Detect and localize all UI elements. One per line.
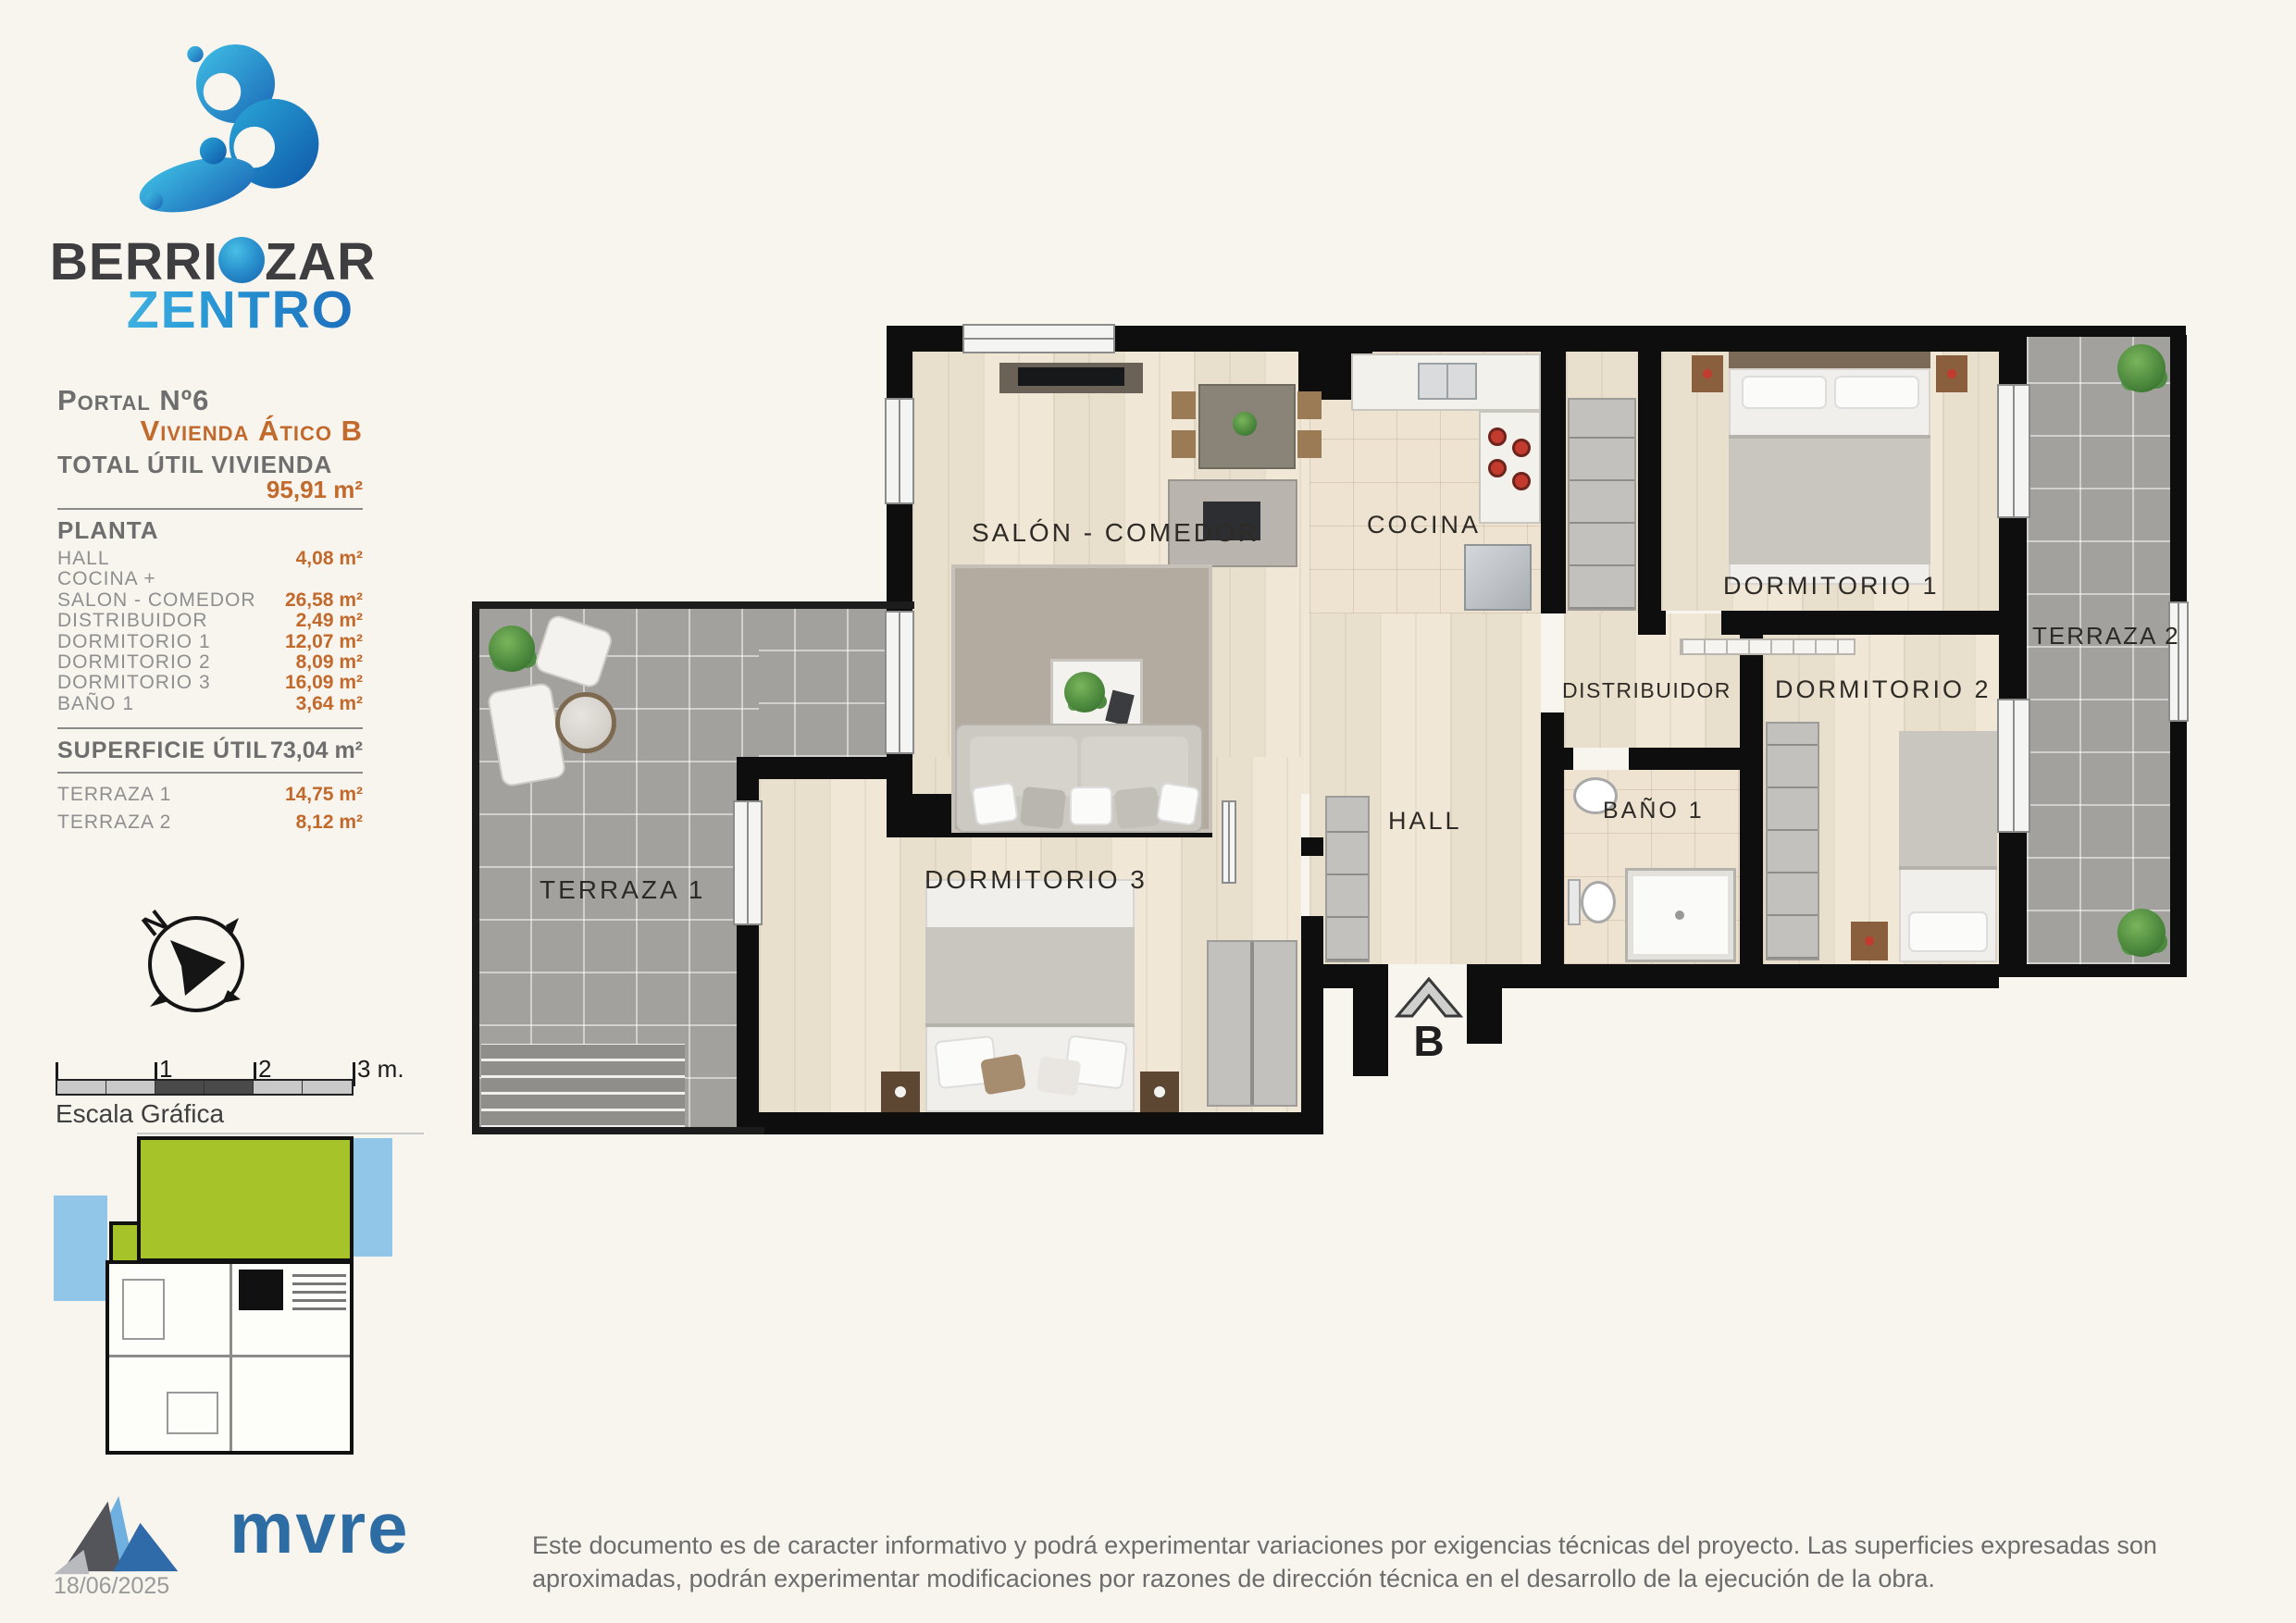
superficie-row: SUPERFICIE ÚTIL 73,04 m² bbox=[57, 737, 363, 764]
table-row: SALON - COMEDOR26,58 m² bbox=[57, 589, 363, 610]
wall bbox=[1467, 964, 1999, 988]
window bbox=[962, 324, 1115, 353]
brand-line-2: ZENTRO bbox=[37, 279, 389, 341]
window bbox=[733, 800, 763, 925]
room-label-dormitorio1: DORMITORIO 1 bbox=[1723, 572, 1940, 601]
wall bbox=[1301, 916, 1323, 1112]
wall bbox=[1629, 748, 1740, 770]
sofa-pillow bbox=[1020, 787, 1066, 830]
table-plant-icon bbox=[1233, 412, 1257, 436]
terrace-plant-icon bbox=[2117, 344, 2166, 392]
terraza2-row: TERRAZA 2 8,12 m² bbox=[57, 811, 363, 834]
window bbox=[1997, 384, 2030, 518]
nightstand bbox=[1851, 922, 1888, 960]
bed-headboard bbox=[1729, 352, 1930, 368]
wall bbox=[2170, 722, 2187, 964]
table-row: COCINA + bbox=[57, 568, 363, 588]
key-plan-core bbox=[239, 1270, 283, 1310]
bed-blanket bbox=[1729, 435, 1930, 564]
bed-cushion bbox=[980, 1053, 1026, 1095]
compass-icon: N bbox=[130, 898, 259, 1027]
table-row: DORMITORIO 112,07 m² bbox=[57, 631, 363, 651]
room-label-bano1: BAÑO 1 bbox=[1603, 798, 1705, 824]
bed-blanket bbox=[925, 927, 1135, 1027]
fridge bbox=[1464, 544, 1532, 611]
wardrobe bbox=[1207, 940, 1297, 1107]
terrace-plant-icon bbox=[489, 626, 535, 672]
key-plan-stairs bbox=[292, 1270, 346, 1310]
key-plan-terrace-right bbox=[354, 1138, 392, 1257]
table-row: DISTRIBUIDOR2,49 m² bbox=[57, 610, 363, 630]
wall bbox=[1541, 712, 1564, 964]
hall-wardrobe bbox=[1325, 796, 1370, 962]
entrance-stub-wall bbox=[1353, 988, 1388, 1076]
portal-label: Portal Nº6 bbox=[57, 384, 209, 417]
terrace-railing bbox=[2168, 601, 2189, 722]
terraza1-border bbox=[472, 601, 479, 1134]
wardrobe bbox=[1568, 398, 1636, 611]
radiator bbox=[1680, 638, 1855, 655]
terrace-plant-icon bbox=[2117, 909, 2166, 957]
planta-label: PLANTA bbox=[57, 516, 159, 545]
terraza1-border bbox=[472, 1127, 764, 1134]
floorplan-document: BERRIOZAR ZENTRO Portal Nº6 Vivienda Áti… bbox=[0, 0, 2296, 1623]
key-plan bbox=[28, 1131, 426, 1492]
wall bbox=[737, 925, 759, 1112]
terrace-door-window bbox=[885, 611, 914, 754]
mvre-wordmark: mvre bbox=[230, 1492, 409, 1564]
sofa-pillow bbox=[1070, 787, 1112, 825]
scale-caption: Escala Gráfica bbox=[56, 1099, 224, 1129]
wall bbox=[737, 757, 912, 779]
bed-pillow bbox=[1834, 376, 1919, 409]
nightstand bbox=[881, 1072, 920, 1112]
nightstand bbox=[1140, 1072, 1179, 1112]
room-label-cocina: COCINA bbox=[1367, 511, 1481, 539]
table-row: DORMITORIO 316,09 m² bbox=[57, 672, 363, 692]
key-plan-highlight-unit-upper bbox=[137, 1136, 354, 1262]
berriozar-splash-logo-icon bbox=[88, 17, 356, 231]
room-label-dormitorio3: DORMITORIO 3 bbox=[925, 865, 1148, 895]
cooktop-burner bbox=[1512, 472, 1531, 490]
sofa-pillow bbox=[1156, 782, 1200, 826]
entrance-arrow-icon bbox=[1394, 972, 1464, 1020]
wardrobe bbox=[1766, 722, 1819, 960]
scale-bar-segments bbox=[56, 1079, 354, 1096]
brand-o-ball-icon: O bbox=[218, 237, 265, 283]
wall bbox=[1638, 326, 1661, 611]
window bbox=[885, 398, 914, 504]
wall bbox=[1999, 964, 2187, 977]
superficie-value: 73,04 m² bbox=[270, 737, 363, 764]
room-areas-table: HALL4,08 m² COCINA + SALON - COMEDOR26,5… bbox=[57, 548, 363, 713]
tv bbox=[1018, 367, 1124, 386]
wall bbox=[737, 1112, 1323, 1134]
round-table bbox=[555, 692, 616, 753]
dining-chair bbox=[1172, 430, 1196, 458]
scale-bar: 1 2 3 m. Escala Gráfica bbox=[56, 1055, 444, 1138]
key-plan-terrace-left bbox=[54, 1196, 107, 1301]
kitchen-sink bbox=[1418, 363, 1477, 400]
window bbox=[1997, 699, 2030, 833]
disclaimer-text: Este documento es de caracter informativ… bbox=[532, 1529, 2272, 1596]
cooktop-burner bbox=[1488, 427, 1507, 446]
scale-tick-3: 3 m. bbox=[357, 1055, 404, 1084]
compass-north-label: N bbox=[136, 903, 173, 943]
bed-cushion bbox=[1036, 1056, 1082, 1096]
table-row: DORMITORIO 28,09 m² bbox=[57, 651, 363, 672]
superficie-label: SUPERFICIE ÚTIL bbox=[57, 737, 268, 764]
cooktop-burner bbox=[1512, 439, 1531, 457]
bed-blanket bbox=[1899, 731, 1997, 870]
toilet-tank bbox=[1568, 879, 1581, 925]
sofa-pillow bbox=[971, 782, 1018, 826]
dining-chair bbox=[1172, 391, 1196, 419]
wall bbox=[1740, 613, 1763, 964]
room-label-hall: HALL bbox=[1388, 807, 1462, 836]
wall bbox=[1721, 611, 1999, 635]
document-date: 18/06/2025 bbox=[54, 1573, 169, 1600]
coffee-table-plant-icon bbox=[1064, 672, 1105, 712]
room-label-salon: SALÓN - COMEDOR bbox=[972, 518, 1260, 548]
table-row: HALL4,08 m² bbox=[57, 548, 363, 568]
door-leaf bbox=[1222, 800, 1236, 884]
mvre-mountains-icon bbox=[54, 1488, 230, 1577]
terraza1-row: TERRAZA 1 14,75 m² bbox=[57, 784, 363, 806]
cooktop-burner bbox=[1488, 459, 1507, 477]
wall bbox=[2027, 326, 2186, 337]
dining-chair bbox=[1297, 391, 1322, 419]
vivienda-label: Vivienda Ático B bbox=[57, 415, 363, 448]
divider bbox=[57, 772, 363, 774]
divider bbox=[57, 508, 363, 510]
room-label-terraza2: TERRAZA 2 bbox=[2032, 622, 2180, 650]
bed-pillow bbox=[1908, 911, 1988, 952]
dining-chair bbox=[1297, 430, 1322, 458]
entrance-stub-wall bbox=[1467, 988, 1502, 1044]
room-label-dormitorio2: DORMITORIO 2 bbox=[1775, 675, 1992, 704]
toilet bbox=[1581, 881, 1616, 923]
divider bbox=[57, 727, 363, 729]
room-label-distribuidor: DISTRIBUIDOR bbox=[1562, 678, 1731, 703]
entrance-letter: B bbox=[1394, 1016, 1464, 1066]
wall bbox=[1541, 326, 1566, 613]
nightstand bbox=[1692, 355, 1723, 392]
bed-pillow bbox=[1742, 376, 1827, 409]
wall bbox=[1638, 611, 1666, 635]
nightstand bbox=[1936, 355, 1967, 392]
wall bbox=[2170, 335, 2187, 601]
wall bbox=[1301, 837, 1323, 856]
terraza1-border bbox=[472, 601, 914, 609]
shower-drain bbox=[1675, 911, 1684, 920]
total-util-value: 95,91 m² bbox=[57, 476, 363, 504]
terraza1-stairs bbox=[481, 1044, 685, 1128]
sofa-pillow bbox=[1114, 787, 1160, 830]
room-label-terraza1: TERRAZA 1 bbox=[540, 875, 705, 905]
table-row: BAÑO 13,64 m² bbox=[57, 693, 363, 713]
